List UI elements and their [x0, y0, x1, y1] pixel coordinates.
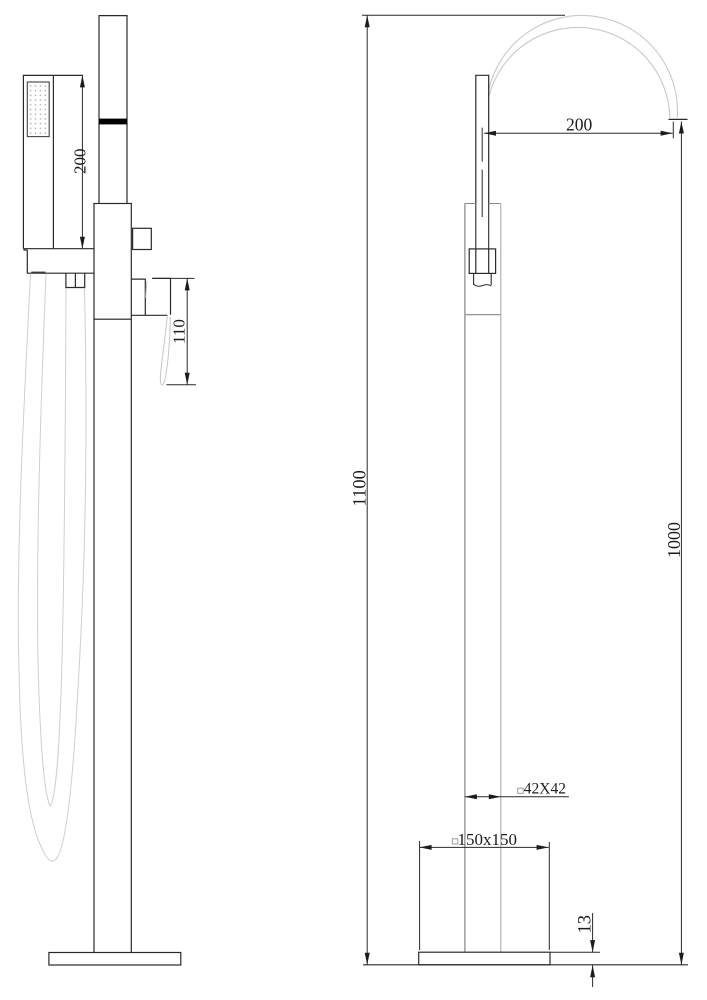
svg-text:150x150: 150x150	[458, 830, 518, 849]
svg-text:13: 13	[576, 915, 596, 934]
svg-text:1000: 1000	[664, 522, 684, 558]
svg-text:200: 200	[71, 149, 90, 175]
svg-text:110: 110	[170, 319, 189, 344]
svg-text:200: 200	[566, 115, 593, 135]
svg-text:1100: 1100	[350, 470, 370, 506]
svg-text:42X42: 42X42	[524, 781, 566, 798]
